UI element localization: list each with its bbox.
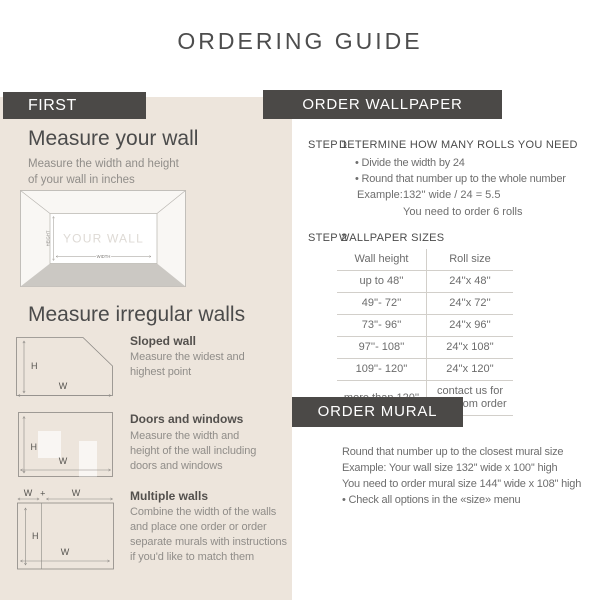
multiple-walls-title: Multiple walls [130,489,208,503]
cell-roll-size: 24''x 48'' [427,271,513,292]
multiple-w-label: W [61,547,70,557]
room-perspective-diagram: YOUR WALL HEIGHT WIDTH [20,190,186,287]
table-row: up to 48'' 24''x 48'' [337,271,513,293]
width-arrow-label: WIDTH [97,254,111,259]
doors-windows-diagram: H W [18,412,113,477]
multiple-desc-line2: and place one order or order [130,520,287,535]
page-title: ORDERING GUIDE [0,28,600,55]
multiple-plus-label: + [40,489,45,499]
ordering-guide-page: ORDERING GUIDE FIRST Measure your wall M… [0,0,600,600]
doors-desc-line3: doors and windows [130,459,256,474]
first-section-badge: FIRST [3,92,146,119]
mural-line3: You need to order mural size 144'' wide … [342,476,581,492]
step1-bullet2: • Round that number up to the whole numb… [355,171,566,187]
table-row: 97''- 108'' 24''x 108'' [337,337,513,359]
sloped-w-label: W [59,381,68,391]
height-arrow-label: HEIGHT [46,230,51,246]
order-mural-header: ORDER MURAL [292,397,463,427]
order-mural-text: Round that number up to the closest mura… [342,444,581,508]
cell-roll-size: 24''x 120'' [427,359,513,380]
window-shape [38,431,61,458]
doors-desc-line1: Measure the width and [130,429,256,444]
cell-wall-height: 97''- 108'' [337,337,427,358]
door-shape [79,441,97,477]
doors-windows-title: Doors and windows [130,412,243,426]
doors-w-label: W [59,456,68,466]
table-header-row: Wall height Roll size [337,249,513,271]
multiple-walls-diagram: W + W H W [17,489,114,570]
measure-wall-subtitle-line1: Measure the width and height [28,156,179,172]
step1-example-result: You need to order 6 rolls [403,206,522,218]
table-row: 73''- 96'' 24''x 96'' [337,315,513,337]
doors-desc-line2: height of the wall including [130,444,256,459]
measure-wall-subtitle-line2: of your wall in inches [28,172,179,188]
irregular-walls-heading: Measure irregular walls [28,303,245,327]
sloped-desc-line2: highest point [130,365,245,380]
step1-bullets: • Divide the width by 24 • Round that nu… [355,155,566,187]
col-header-roll-size: Roll size [427,249,513,270]
order-wallpaper-header: ORDER WALLPAPER [263,90,502,119]
cell-wall-height: 49''- 72'' [337,293,427,314]
mural-line1: Round that number up to the closest mura… [342,444,581,460]
multiple-w-top-left-label: W [24,489,33,498]
doors-h-label: H [31,442,38,452]
multiple-w-top-right-label: W [72,489,81,498]
mural-line4: • Check all options in the «size» menu [342,492,581,508]
col-header-wall-height: Wall height [337,249,427,270]
cell-roll-size: 24''x 72'' [427,293,513,314]
cell-wall-height: 109''- 120'' [337,359,427,380]
step2-title: WALLPAPER SIZES [339,232,444,244]
step1-bullet1: • Divide the width by 24 [355,155,566,171]
table-row: 49''- 72'' 24''x 72'' [337,293,513,315]
cell-wall-height: 73''- 96'' [337,315,427,336]
multiple-h-label: H [32,531,39,541]
sloped-desc-line1: Measure the widest and [130,350,245,365]
multiple-desc-line3: separate murals with instructions [130,535,287,550]
measure-wall-subtitle: Measure the width and height of your wal… [28,156,179,188]
cell-roll-size: 24''x 108'' [427,337,513,358]
step1-title: DETERMINE HOW MANY ROLLS YOU NEED [339,139,578,151]
multiple-walls-desc: Combine the width of the walls and place… [130,505,287,565]
mural-line2: Example: Your wall size 132'' wide x 100… [342,460,581,476]
table-row: 109''- 120'' 24''x 120'' [337,359,513,381]
multiple-desc-line1: Combine the width of the walls [130,505,287,520]
multiple-desc-line4: if you'd like to match them [130,550,287,565]
sloped-wall-desc: Measure the widest and highest point [130,350,245,380]
sloped-wall-title: Sloped wall [130,334,196,348]
sloped-wall-diagram: H W [16,335,113,398]
step1-example-value: 132'' wide / 24 = 5.5 [403,189,500,201]
cell-wall-height: up to 48'' [337,271,427,292]
your-wall-text: YOUR WALL [63,232,144,246]
measure-wall-heading: Measure your wall [28,127,198,151]
sloped-h-label: H [31,361,38,371]
doors-windows-desc: Measure the width and height of the wall… [130,429,256,474]
step1-example-label: Example: [357,189,403,201]
wallpaper-sizes-table: Wall height Roll size up to 48'' 24''x 4… [337,249,513,416]
cell-roll-size: 24''x 96'' [427,315,513,336]
